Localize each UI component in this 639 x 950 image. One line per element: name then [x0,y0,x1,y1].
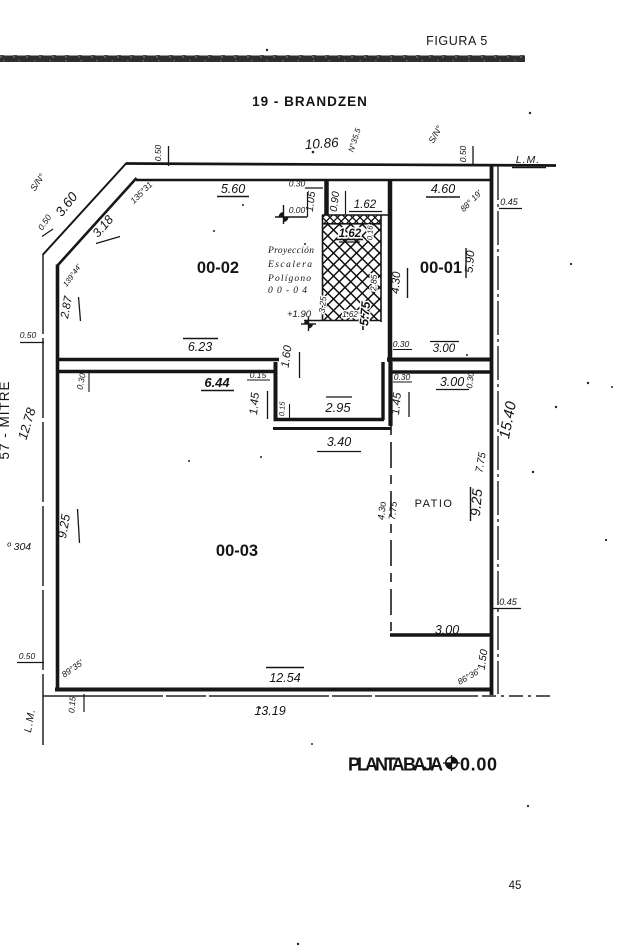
svg-text:º 304: º 304 [7,541,31,553]
svg-text:3.60: 3.60 [52,189,80,219]
svg-text:3.40: 3.40 [327,435,351,449]
svg-text:0.45: 0.45 [499,597,518,607]
svg-text:12.54: 12.54 [269,671,300,685]
svg-text:89°35': 89°35' [60,657,86,679]
svg-text:3.00: 3.00 [440,375,464,389]
svg-text:5.60: 5.60 [221,182,245,196]
svg-text:N°35.5: N°35.5 [347,127,363,154]
svg-text:6.23: 6.23 [188,340,212,354]
svg-text:6.44: 6.44 [204,375,230,390]
svg-text:3.25: 3.25 [317,296,329,314]
svg-text:10.86: 10.86 [304,135,339,152]
svg-text:0.15: 0.15 [250,370,267,380]
svg-text:12.78: 12.78 [15,405,39,441]
svg-text:00-02: 00-02 [197,259,239,277]
svg-text:1.62: 1.62 [354,199,377,211]
svg-text:5.90: 5.90 [464,249,478,273]
svg-text:1.62: 1.62 [342,310,358,319]
svg-text:1.62: 1.62 [339,228,362,240]
svg-text:0.30: 0.30 [394,372,411,382]
svg-text:86°36': 86°36' [456,666,482,687]
svg-text:0.50: 0.50 [153,144,163,161]
svg-text:0.16: 0.16 [365,225,375,241]
svg-text:4.30: 4.30 [390,271,404,295]
svg-text:1.50: 1.50 [476,648,491,670]
svg-text:Polígono: Polígono [267,274,311,284]
svg-text:9.25: 9.25 [55,513,73,539]
svg-text:1.45: 1.45 [390,391,404,415]
svg-text:13.19: 13.19 [254,704,285,718]
svg-text:00-01: 00-01 [420,259,462,277]
svg-text:0.30: 0.30 [289,179,306,189]
svg-text:3.18: 3.18 [90,213,117,241]
svg-text:1.05: 1.05 [304,191,318,213]
svg-text:5.75: 5.75 [357,300,373,327]
svg-text:0.50: 0.50 [458,145,468,162]
svg-text:L.M.: L.M. [22,707,38,733]
svg-text:0.30: 0.30 [393,339,410,349]
svg-text:00-04: 00-04 [268,286,307,296]
svg-text:1.60: 1.60 [280,344,295,368]
svg-text:9.25: 9.25 [467,488,485,517]
svg-text:2.95: 2.95 [324,400,351,415]
svg-text:00-03: 00-03 [216,542,258,560]
svg-text:0.15: 0.15 [66,696,77,714]
svg-text:S/N°: S/N° [28,171,47,192]
svg-text:0.30: 0.30 [464,371,476,389]
svg-text:0.50: 0.50 [36,212,54,232]
svg-text:0.30: 0.30 [74,372,87,391]
svg-text:0.90: 0.90 [328,191,342,213]
svg-text:1.45: 1.45 [248,391,262,415]
svg-text:2.87: 2.87 [59,295,75,321]
svg-text:PLANTA BAJA: PLANTA BAJA [348,755,443,775]
svg-text:0.50: 0.50 [19,651,36,661]
svg-text:3.00: 3.00 [435,623,459,637]
svg-text:S/N°: S/N° [426,124,444,145]
svg-text:19 - BRANDZEN: 19 - BRANDZEN [252,94,368,109]
svg-text:0.00: 0.00 [460,755,497,775]
svg-text:7.75: 7.75 [387,500,400,520]
svg-text:15.40: 15.40 [496,399,520,440]
svg-text:FIGURA 5: FIGURA 5 [426,34,488,48]
svg-text:45: 45 [509,880,522,892]
svg-text:88° 19': 88° 19' [458,188,484,214]
svg-text:7.75: 7.75 [473,451,488,473]
svg-text:Proyección: Proyección [267,246,314,256]
svg-text:L.M.: L.M. [516,154,540,166]
svg-text:PATIO: PATIO [415,498,454,510]
svg-text:0.15: 0.15 [277,401,287,417]
svg-text:57 - MITRE: 57 - MITRE [0,380,12,459]
svg-text:0.45: 0.45 [500,197,519,207]
svg-text:4.60: 4.60 [431,182,455,196]
svg-text:Escalera: Escalera [267,260,312,270]
svg-text:139°44': 139°44' [61,262,83,288]
svg-text:3.00: 3.00 [433,343,456,355]
svg-text:2.85: 2.85 [368,274,379,292]
svg-text:0.50: 0.50 [20,330,37,340]
